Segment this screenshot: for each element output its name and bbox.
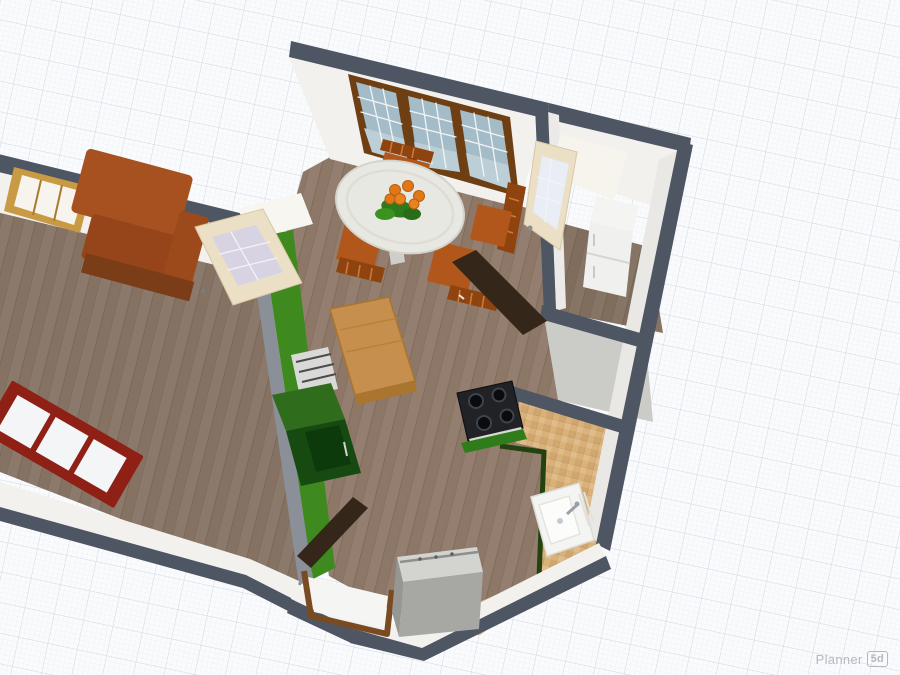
watermark-5d-badge: 5d [867, 651, 888, 667]
sink-faucet-head [575, 502, 580, 507]
sink-drain [557, 518, 563, 524]
door-knob [528, 226, 533, 231]
leaves [403, 208, 421, 220]
door-knob [201, 289, 206, 294]
watermark-brand: Planner [816, 652, 863, 667]
scene-canvas [0, 0, 900, 675]
planner-3d-viewport: Planner 5d [0, 0, 900, 675]
planner5d-watermark: Planner 5d [816, 651, 888, 667]
fridge-front [583, 222, 633, 297]
dishwasher[interactable] [392, 547, 483, 637]
leaves [375, 208, 395, 220]
dishwasher-front [399, 572, 483, 637]
